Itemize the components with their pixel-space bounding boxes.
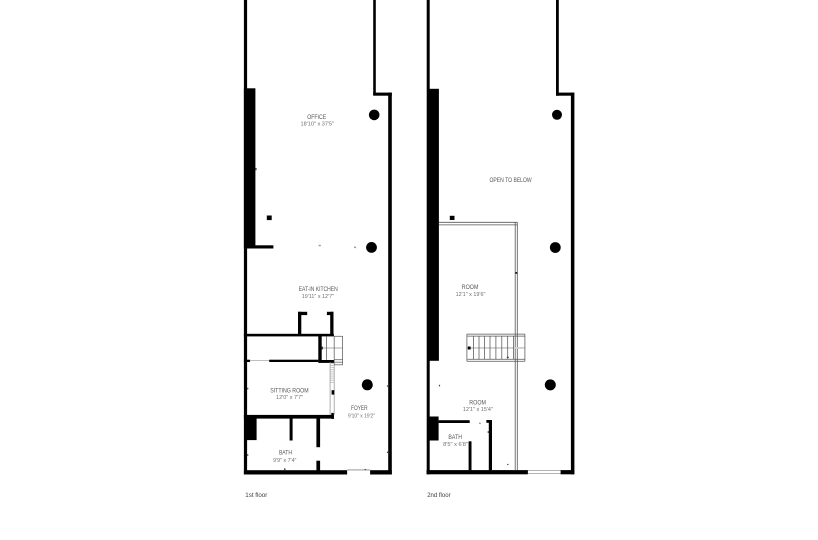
- svg-text:12'1" x 19'6": 12'1" x 19'6": [456, 292, 486, 298]
- svg-text:BATH: BATH: [279, 450, 292, 457]
- svg-text:EAT-IN KITCHEN: EAT-IN KITCHEN: [299, 286, 338, 293]
- svg-text:8'5" x 6'8": 8'5" x 6'8": [443, 442, 468, 448]
- svg-text:SITTING ROOM: SITTING ROOM: [270, 387, 308, 394]
- svg-text:ROOM: ROOM: [469, 400, 486, 407]
- svg-text:12'1" x 15'4": 12'1" x 15'4": [463, 407, 493, 413]
- svg-text:FOYER: FOYER: [351, 405, 368, 412]
- svg-text:19'11" x 12'7": 19'11" x 12'7": [302, 294, 334, 300]
- svg-text:12'0" x 7'7": 12'0" x 7'7": [276, 395, 303, 401]
- svg-text:18'10" x 37'5": 18'10" x 37'5": [301, 122, 335, 128]
- svg-text:1st floor: 1st floor: [245, 492, 267, 499]
- svg-text:9'10" x 19'2": 9'10" x 19'2": [348, 413, 375, 419]
- svg-text:OPEN TO BELOW: OPEN TO BELOW: [490, 177, 532, 184]
- svg-text:9'9" x 7'4": 9'9" x 7'4": [273, 458, 296, 464]
- svg-text:ROOM: ROOM: [462, 284, 479, 291]
- svg-text:2nd floor: 2nd floor: [427, 492, 450, 499]
- svg-text:BATH: BATH: [448, 434, 462, 441]
- svg-text:OFFICE: OFFICE: [307, 114, 326, 121]
